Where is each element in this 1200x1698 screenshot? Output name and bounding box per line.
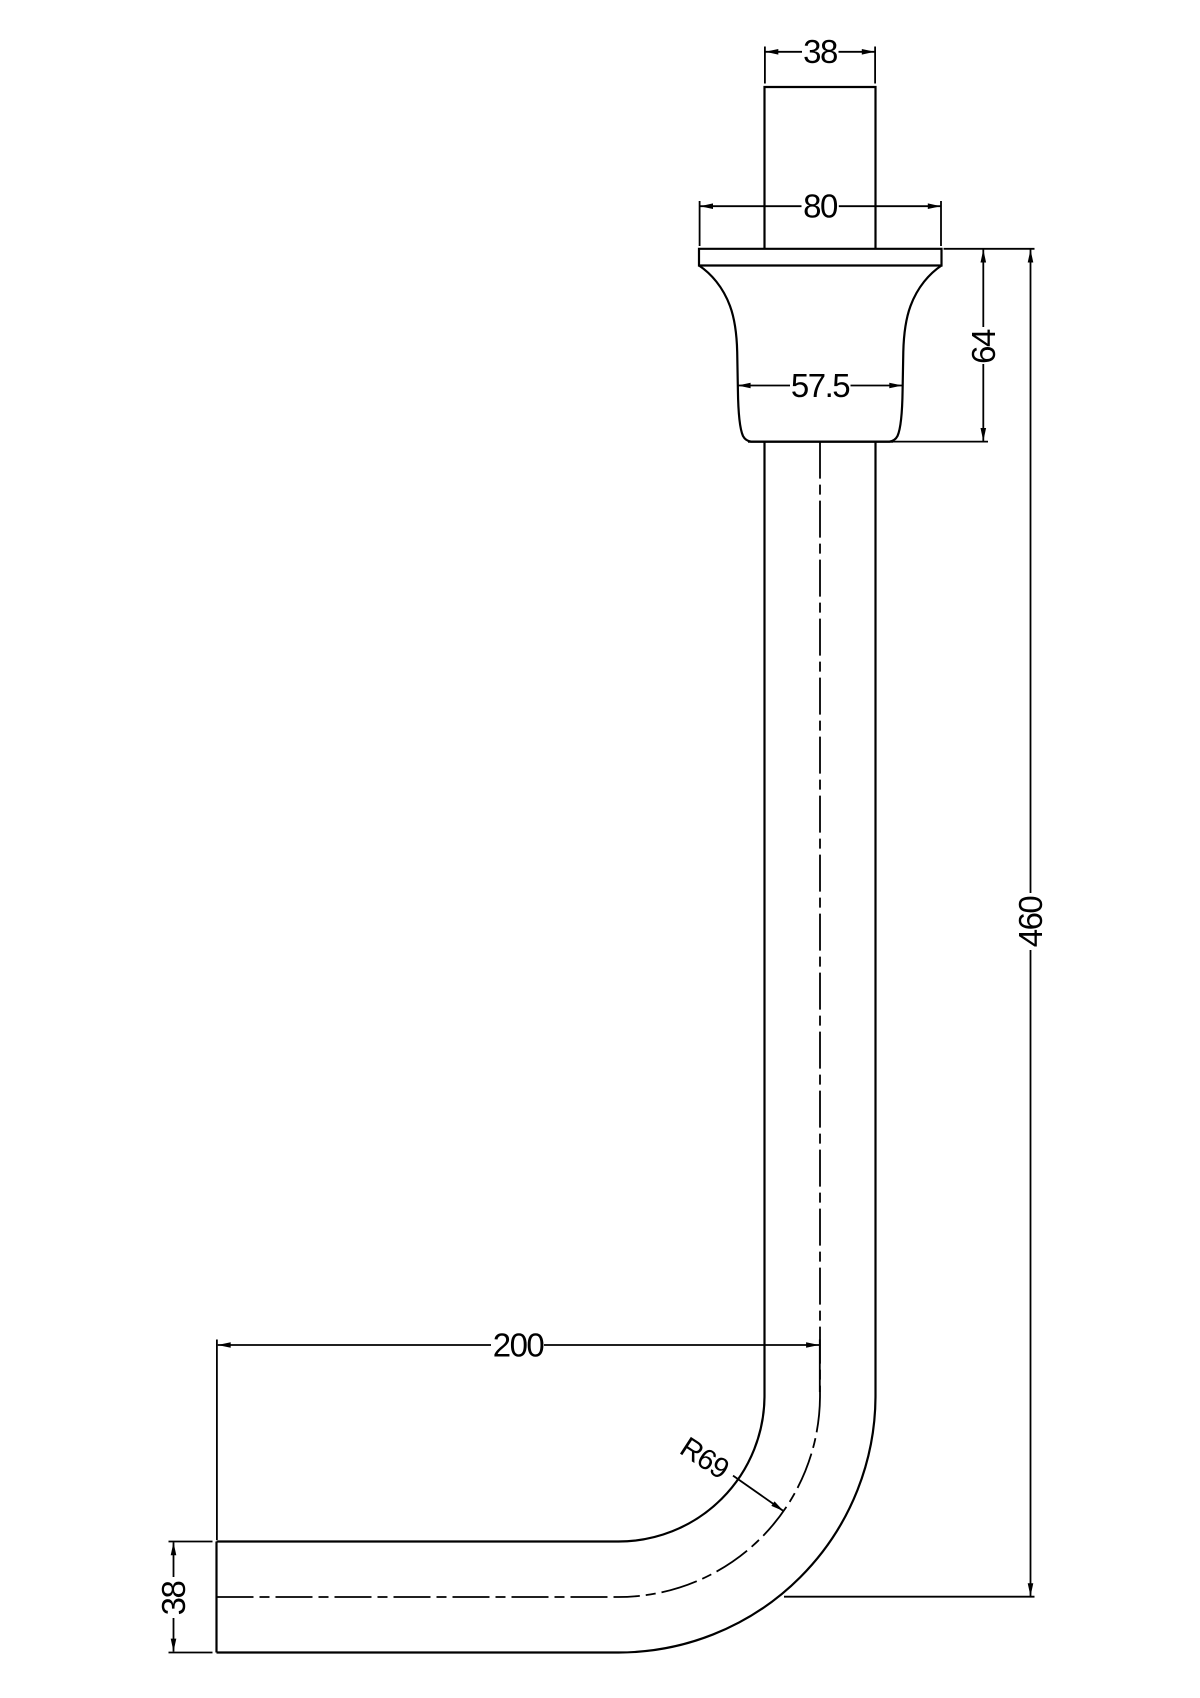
svg-text:38: 38 — [803, 33, 837, 70]
svg-text:64: 64 — [965, 329, 1002, 364]
svg-text:460: 460 — [1012, 896, 1049, 948]
svg-text:200: 200 — [493, 1327, 545, 1364]
svg-text:80: 80 — [803, 188, 838, 225]
svg-text:38: 38 — [155, 1582, 192, 1616]
svg-text:57.5: 57.5 — [791, 367, 849, 404]
